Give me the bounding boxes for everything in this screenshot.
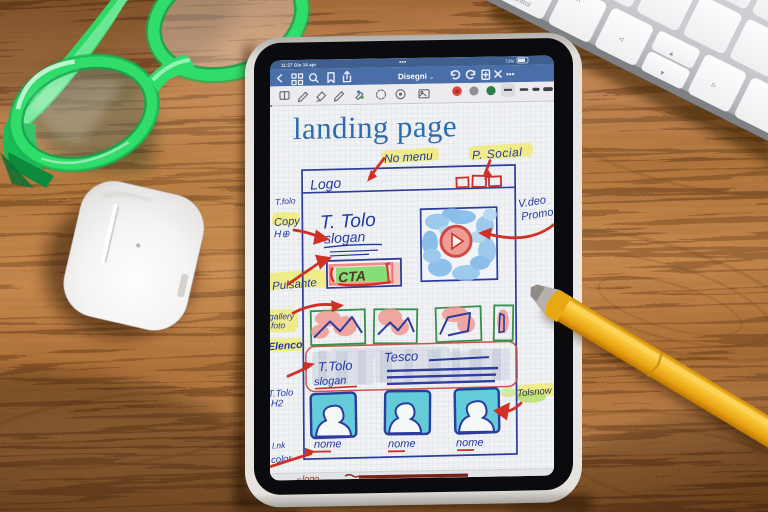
svg-text:CTA: CTA xyxy=(338,267,367,285)
svg-text:Copy: Copy xyxy=(274,215,302,229)
svg-text:foto: foto xyxy=(271,320,285,330)
svg-text:11:27 Gio 14 apr: 11:27 Gio 14 apr xyxy=(281,62,316,68)
svg-text:nome: nome xyxy=(456,437,484,449)
svg-text:T.Tolo: T.Tolo xyxy=(318,358,353,375)
svg-text:Elenco: Elenco xyxy=(268,339,304,353)
svg-text:l.nk: l.nk xyxy=(272,440,287,451)
svg-text:•••: ••• xyxy=(506,70,515,79)
svg-text:Logo: Logo xyxy=(310,175,342,193)
svg-text:Disegni ⌄: Disegni ⌄ xyxy=(398,72,434,82)
svg-text:•••: ••• xyxy=(399,59,407,66)
svg-text:slogan: slogan xyxy=(324,228,366,246)
svg-text:T.folo: T.folo xyxy=(275,195,296,207)
svg-text:slogan: slogan xyxy=(314,375,347,389)
svg-text:landing page: landing page xyxy=(293,108,457,146)
svg-text:H2: H2 xyxy=(271,398,284,409)
svg-text:H⊕: H⊕ xyxy=(274,229,290,240)
svg-text:nome: nome xyxy=(314,438,342,450)
svg-text:73%: 73% xyxy=(505,59,514,64)
svg-text:Tesco: Tesco xyxy=(384,348,419,365)
svg-text:nome: nome xyxy=(388,438,416,450)
